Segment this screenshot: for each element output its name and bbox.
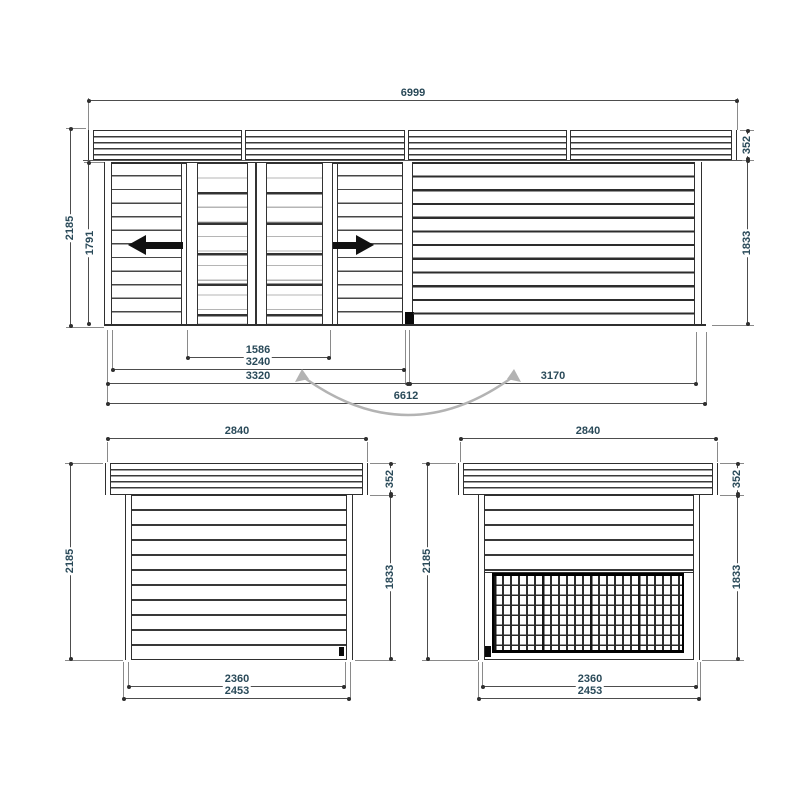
extension-line xyxy=(478,662,479,700)
corner-post xyxy=(693,495,700,660)
side-elevation-right-view: 2840 2185 352 1833 2360 2453 xyxy=(0,0,800,800)
extension-line xyxy=(720,495,744,496)
wall-planks xyxy=(485,496,693,573)
trellis-panel xyxy=(492,573,684,653)
extension-line xyxy=(720,463,744,464)
extension-line xyxy=(700,662,701,700)
dim-label-fascia-height: 352 xyxy=(731,468,743,490)
extension-line xyxy=(460,442,461,462)
technical-drawing: 6999 2185 1791 352 1833 xyxy=(0,0,800,800)
dim-line-roof-width xyxy=(460,438,717,439)
dim-label-overall-height: 2185 xyxy=(421,547,433,575)
dim-label-inner-width: 2360 xyxy=(576,673,604,685)
fascia-end-cap xyxy=(458,463,464,495)
door-stop-block xyxy=(485,646,491,657)
extension-line xyxy=(422,660,478,661)
extension-line xyxy=(697,662,698,688)
dim-label-base-width: 2453 xyxy=(576,685,604,697)
fascia-end-cap xyxy=(712,463,718,495)
dim-label-wall-height: 1833 xyxy=(731,563,743,591)
roof-fascia xyxy=(458,463,718,495)
dim-label-roof-width: 2840 xyxy=(574,425,602,437)
dim-line-base-width xyxy=(478,698,700,699)
fascia-slats xyxy=(459,469,717,489)
corner-post xyxy=(478,495,485,660)
extension-line xyxy=(717,442,718,462)
